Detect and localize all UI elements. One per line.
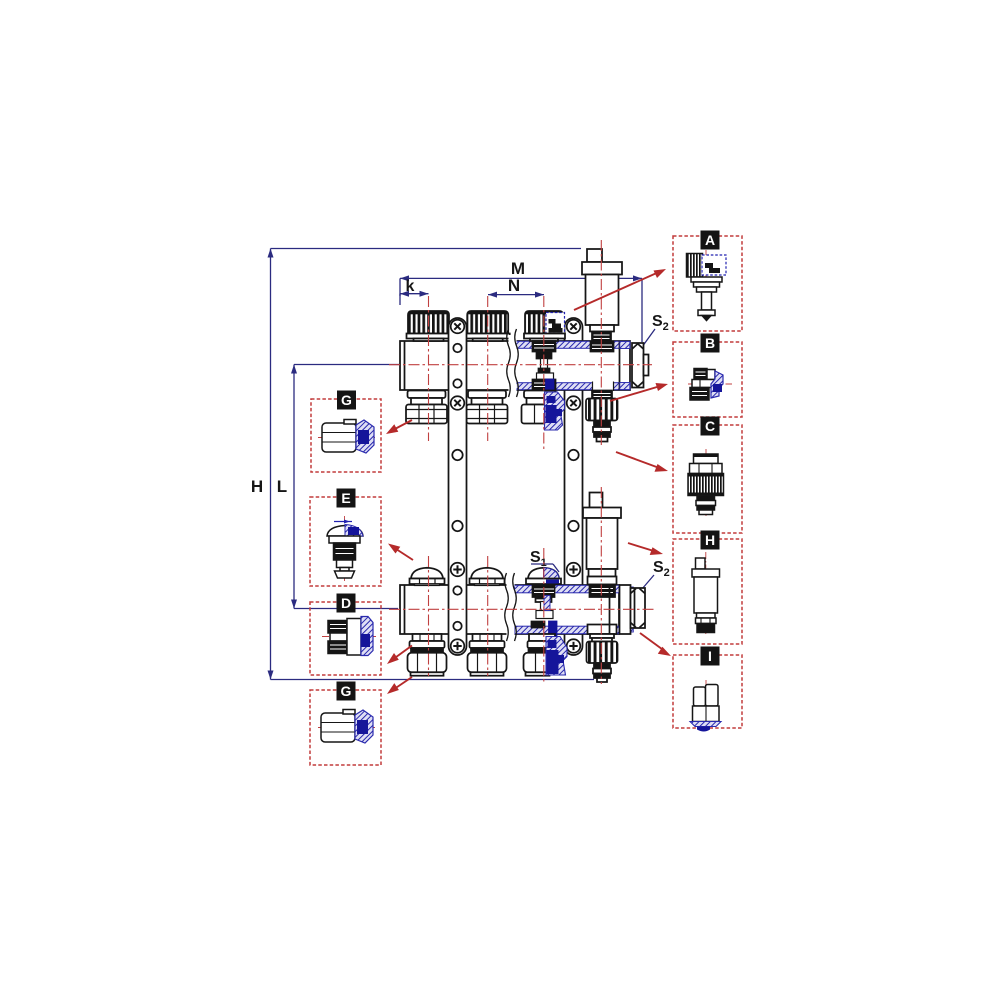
svg-text:G: G	[341, 683, 352, 699]
svg-text:H: H	[705, 532, 715, 548]
svg-text:A: A	[705, 232, 715, 248]
svg-text:L: L	[277, 477, 287, 496]
svg-text:N: N	[508, 276, 520, 295]
svg-text:H: H	[251, 477, 263, 496]
svg-text:D: D	[341, 595, 351, 611]
svg-text:B: B	[705, 335, 715, 351]
svg-text:I: I	[708, 648, 712, 664]
svg-text:k: k	[406, 278, 415, 295]
svg-text:G: G	[341, 392, 352, 408]
svg-text:C: C	[705, 418, 715, 434]
svg-text:E: E	[341, 490, 350, 506]
